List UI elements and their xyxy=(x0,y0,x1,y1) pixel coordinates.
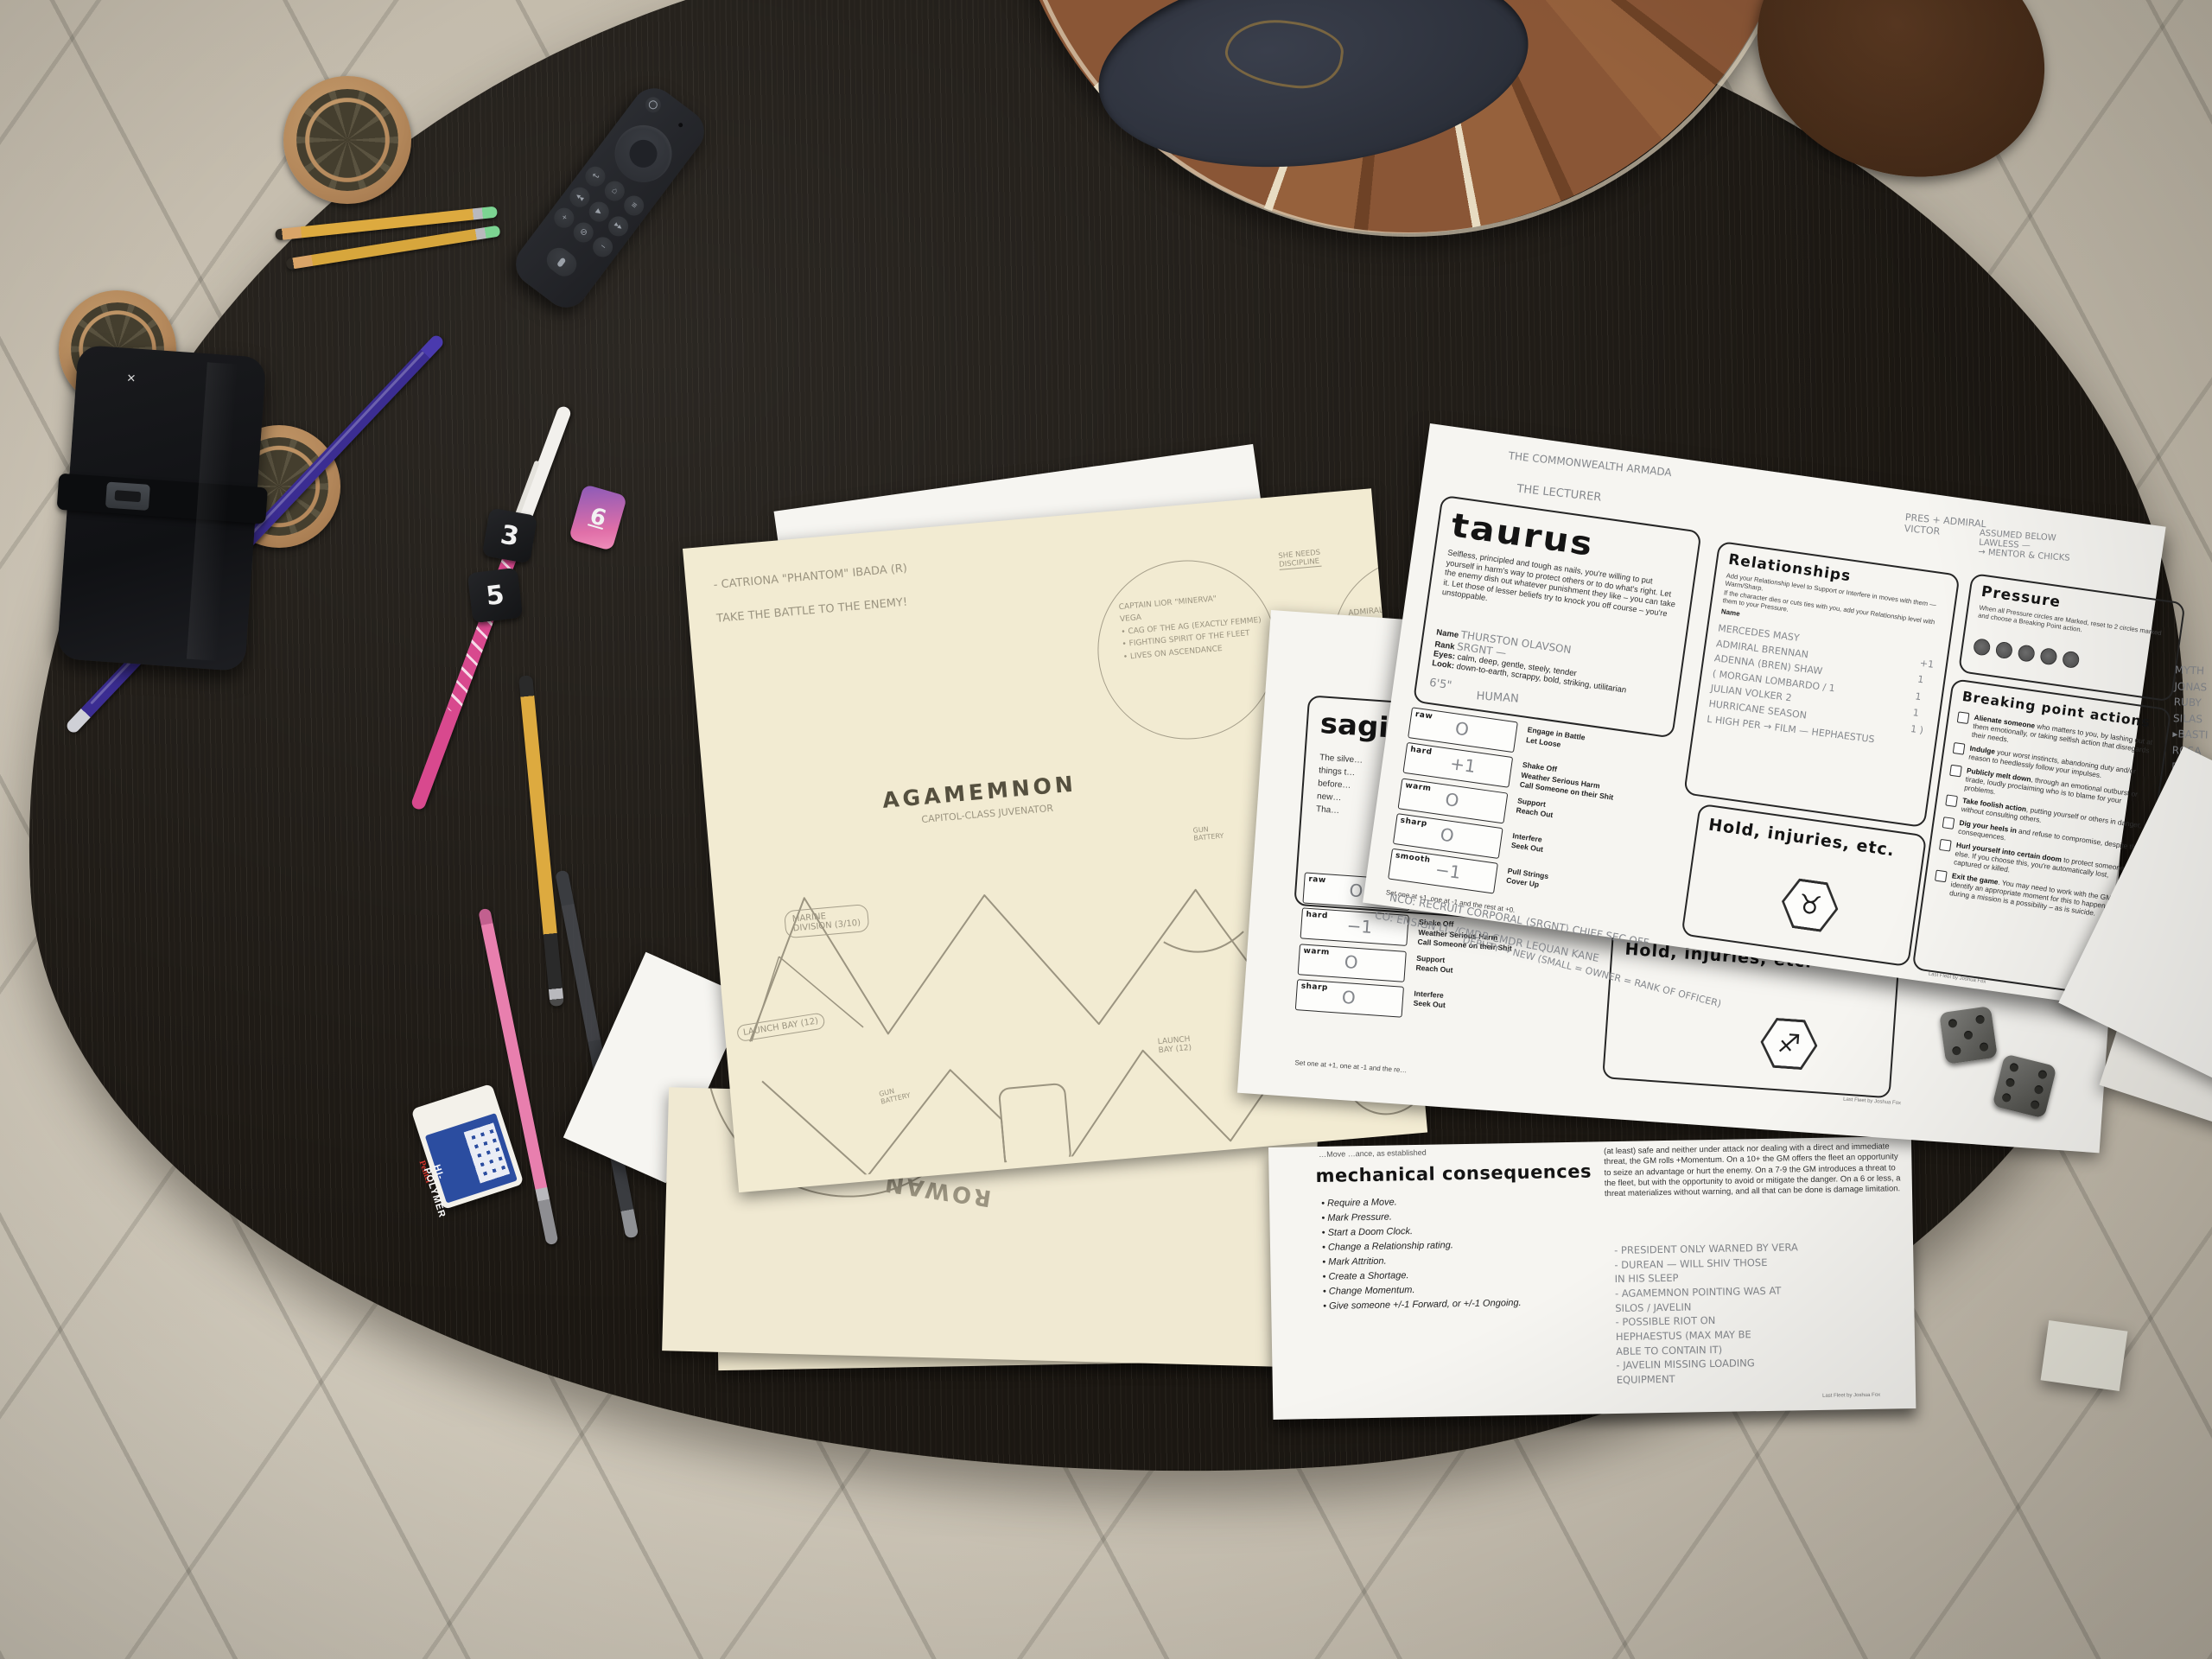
stat-label: hard xyxy=(1410,746,1433,757)
sag-credit: Last Fleet by Joshua Fox xyxy=(1843,1097,1901,1107)
pressure-circle-marked xyxy=(2017,644,2035,662)
checkbox-icon xyxy=(1935,869,1948,882)
menu-icon: ≡ xyxy=(620,192,648,219)
taurus-hw-topright: PRES + ADMIRAL VICTOR xyxy=(1904,512,1986,541)
relationships-entries: MERCEDES MASY ADMIRAL BRENNAN ADENNA (BR… xyxy=(1706,620,1886,747)
hw-height: 6'5" xyxy=(1428,677,1452,692)
stat-value: O xyxy=(1444,789,1460,811)
pressure-circle-marked xyxy=(1995,641,2013,659)
eraser-checker xyxy=(464,1122,510,1183)
label-gun-battery-top: GUN BATTERY xyxy=(1192,824,1224,842)
hw-species: HUMAN xyxy=(1476,690,1519,705)
metal-die-5 xyxy=(1939,1006,1998,1065)
consequences-credit: Last Fleet by Joshua Fox xyxy=(1822,1393,1880,1399)
microphone-icon xyxy=(556,257,566,267)
taurus-title-box: taurus Selfless, principled and tough as… xyxy=(1413,495,1702,739)
stat-box-warm: warmO xyxy=(1298,944,1407,982)
case-logo: ✕ xyxy=(126,372,137,386)
stat-moves: Support Reach Out xyxy=(1514,794,1555,830)
stat-label: sharp xyxy=(1300,982,1328,992)
pressure-circle-marked xyxy=(2062,651,2080,669)
small-paper-slip xyxy=(2041,1320,2128,1391)
consequences-sheet: …Move …ance, as established mechanical c… xyxy=(1268,1136,1916,1420)
stat-label: warm xyxy=(1405,781,1432,793)
checkbox-icon xyxy=(1953,742,1966,755)
label-launch-bay-mid: LAUNCH BAY (12) xyxy=(1157,1035,1192,1055)
stat-moves: Support Reach Out xyxy=(1414,952,1453,986)
relationships-name-col: Name xyxy=(1720,607,1740,618)
consequences-list: • Require a Move. • Mark Pressure. • Sta… xyxy=(1321,1193,1522,1314)
consequences-handwritten: - PRESIDENT ONLY WARNED BY VERA - DUREAN… xyxy=(1614,1240,1801,1387)
pressure-circles xyxy=(1972,638,2086,674)
volume-down-icon: − xyxy=(588,233,616,261)
pouf-emboss xyxy=(1222,14,1346,93)
consequences-paragraph: (at least) safe and neither under attack… xyxy=(1604,1141,1905,1200)
note-line1: - CATRIONA "PHANTOM" IBADA (R) xyxy=(713,562,907,592)
stat-value: O xyxy=(1341,987,1356,1008)
stat-moves: Pull Strings Cover Up xyxy=(1504,864,1549,900)
pressure-circle-marked xyxy=(1973,638,1991,656)
name-label: Name xyxy=(1436,627,1459,639)
look-label: Look: xyxy=(1432,658,1455,671)
stat-label: raw xyxy=(1414,710,1433,721)
taurus-icon: ♉ xyxy=(1796,888,1824,921)
checkbox-icon xyxy=(1939,839,1952,852)
taurus-sheet: THE COMMONWEALTH ARMADA THE LECTURER PRE… xyxy=(1363,423,2166,1006)
voice-button xyxy=(542,243,582,281)
taurus-description: Selfless, principled and tough as nails,… xyxy=(1441,548,1681,630)
checkbox-icon xyxy=(1957,711,1970,724)
stat-value: −1 xyxy=(1346,915,1373,938)
pressure-note: When all Pressure circles are Marked, re… xyxy=(1978,604,2168,645)
stat-moves: Interfere Seek Out xyxy=(1412,987,1446,1020)
sag-stats-note: Set one at +1, one at -1 and the re… xyxy=(1294,1058,1407,1074)
stat-value: O xyxy=(1344,951,1358,973)
buckle-slot xyxy=(114,490,141,502)
stat-value: −1 xyxy=(1434,859,1463,883)
select-button xyxy=(624,134,663,173)
stat-label: raw xyxy=(1308,875,1326,885)
pencil-case: ✕ xyxy=(57,345,267,671)
case-buckle xyxy=(105,482,150,511)
consequences-title: mechanical consequences xyxy=(1315,1160,1592,1186)
stat-value: O xyxy=(1439,823,1455,846)
taurus-hw-header1: THE COMMONWEALTH ARMADA xyxy=(1508,449,1672,479)
hold-title: Hold, injuries, etc. xyxy=(1707,816,1896,861)
stat-value: O xyxy=(1454,718,1471,741)
note-line2: TAKE THE BATTLE TO THE ENEMY! xyxy=(716,595,908,625)
die-face: 3 xyxy=(482,508,538,564)
checkbox-icon xyxy=(1945,795,1958,808)
checkbox-icon xyxy=(1942,817,1955,829)
fast-forward-icon: ▶▶ xyxy=(605,213,632,240)
sag-desc: The silve… things t… before… new… Tha… xyxy=(1316,751,1363,818)
relationships-box: Relationships Add your Relationship leve… xyxy=(1683,541,1960,828)
microphone-hole-icon xyxy=(677,122,683,128)
captain-circle: CAPTAIN LIOR "MINERVA" VEGA • CAG OF THE… xyxy=(1090,553,1284,747)
stat-label: sharp xyxy=(1400,817,1427,829)
cork-coaster-top xyxy=(283,76,411,204)
taurus-hw-header2: THE LECTURER xyxy=(1516,482,1602,504)
power-icon xyxy=(642,94,664,116)
arrow-note-1: SHE NEEDS DISCIPLINE xyxy=(1278,549,1322,570)
coaster-print xyxy=(296,89,398,191)
stat-label: hard xyxy=(1306,911,1328,921)
die-face: 5 xyxy=(467,568,524,624)
checkbox-icon xyxy=(1949,764,1962,777)
eraser-sleeve: Pentel HI-POLYMER xyxy=(425,1113,518,1204)
stat-moves: Interfere Seek Out xyxy=(1510,829,1546,865)
stat-label: warm xyxy=(1303,946,1330,957)
stat-value: +1 xyxy=(1449,753,1478,777)
stat-box-sharp: sharpO xyxy=(1295,979,1404,1018)
pressure-circle-marked xyxy=(2039,647,2057,665)
stat-moves: Engage in Battle Let Loose xyxy=(1524,723,1586,762)
header-fragment: …Move …ance, as established xyxy=(1319,1148,1427,1160)
stat-value: O xyxy=(1349,880,1363,901)
case-fold xyxy=(187,362,259,662)
agamemnon-notes: - CATRIONA "PHANTOM" IBADA (R) TAKE THE … xyxy=(711,543,911,627)
black-die-3: 3 xyxy=(482,508,538,564)
sagittarius-icon: ♐ xyxy=(1777,1028,1802,1060)
captain-circle-text: CAPTAIN LIOR "MINERVA" VEGA • CAG OF THE… xyxy=(1118,589,1264,664)
relationships-values: +1 1 1 1 1 ) xyxy=(1910,655,1935,740)
pressure-box: Pressure When all Pressure circles are M… xyxy=(1958,573,2186,702)
black-die-5: 5 xyxy=(467,568,524,624)
pressure-hw-note: ASSUMED BELOW LAWLESS — → MENTOR & CHICK… xyxy=(1978,528,2071,563)
stat-label: smooth xyxy=(1395,851,1431,865)
